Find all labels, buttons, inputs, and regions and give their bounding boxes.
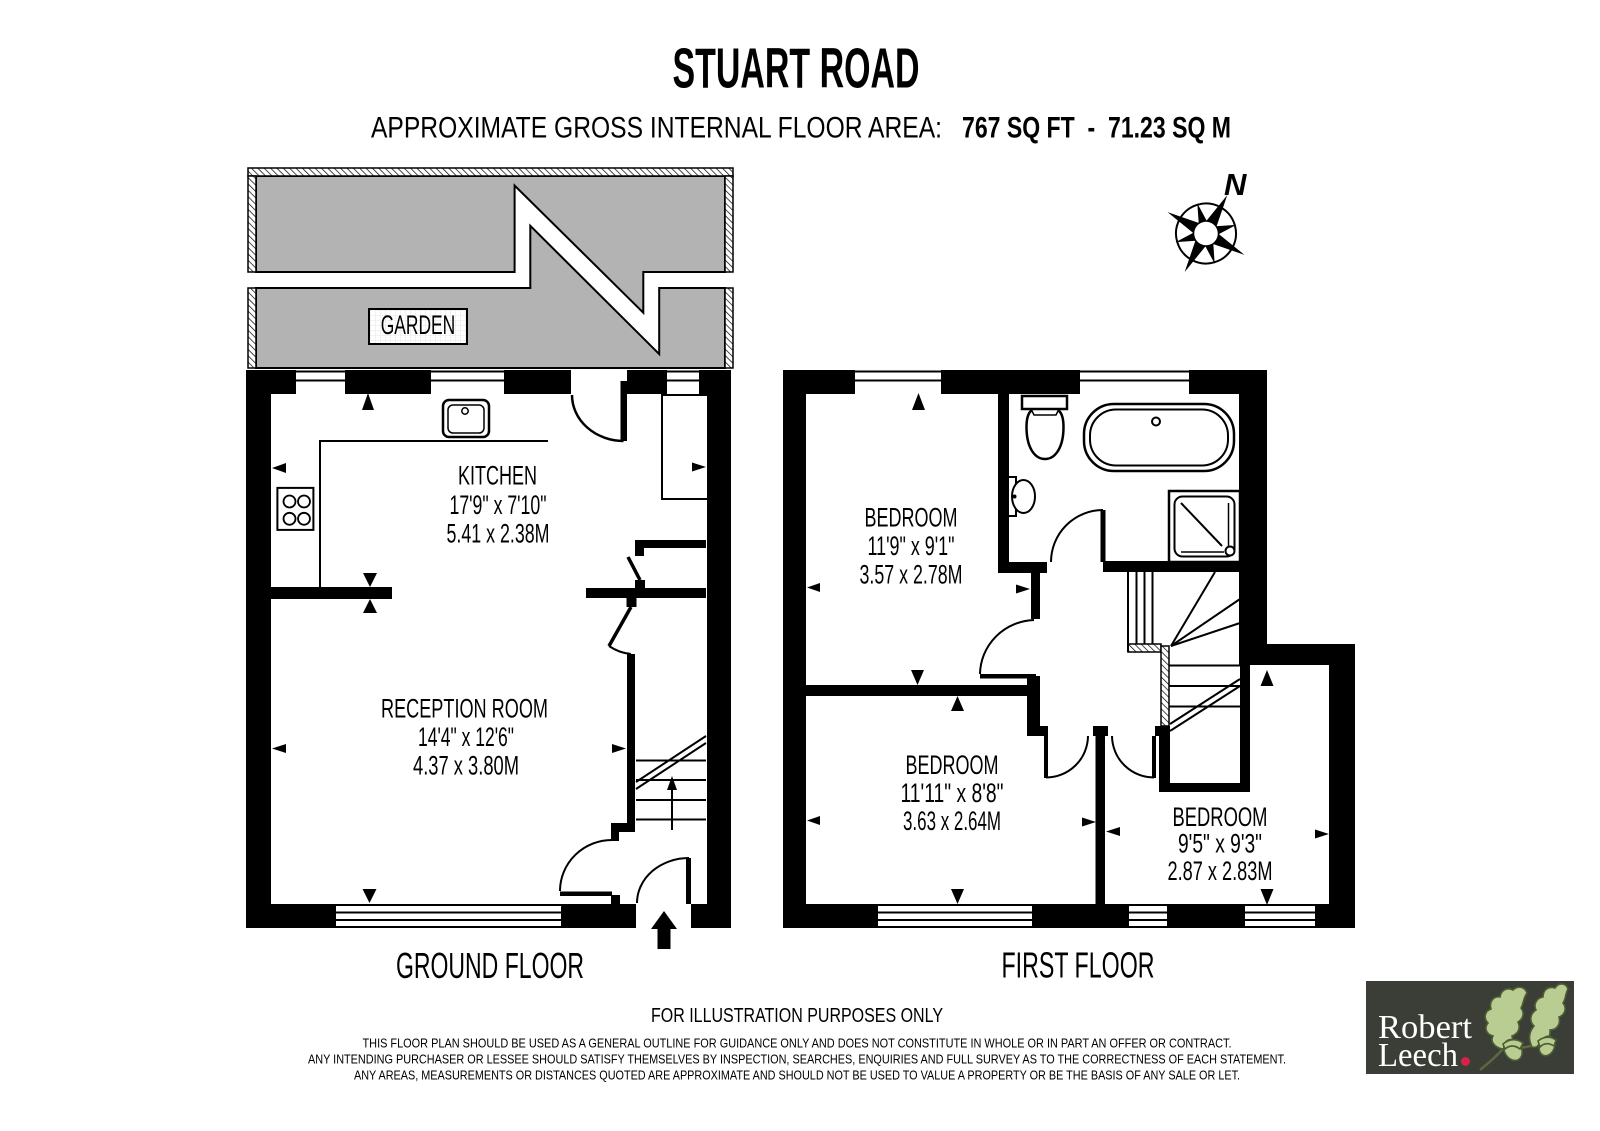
svg-text:RECEPTION ROOM: RECEPTION ROOM bbox=[381, 694, 548, 724]
svg-text:14'4" x 12'6": 14'4" x 12'6" bbox=[418, 722, 514, 752]
svg-text:17'9" x 7'10": 17'9" x 7'10" bbox=[450, 490, 547, 520]
svg-text:11'9" x 9'1": 11'9" x 9'1" bbox=[868, 531, 955, 561]
svg-text:N: N bbox=[1224, 167, 1247, 202]
svg-text:GROUND FLOOR: GROUND FLOOR bbox=[396, 945, 584, 986]
svg-text:ANY AREAS, MEASUREMENTS OR DIS: ANY AREAS, MEASUREMENTS OR DISTANCES QUO… bbox=[354, 1068, 1240, 1083]
svg-text:FOR ILLUSTRATION PURPOSES ONLY: FOR ILLUSTRATION PURPOSES ONLY bbox=[651, 1005, 943, 1027]
svg-text:Leech: Leech bbox=[1378, 1037, 1458, 1074]
svg-text:5.41 x 2.38M: 5.41 x 2.38M bbox=[447, 519, 550, 549]
svg-text:767 SQ FT - 71.23 SQ M: 767 SQ FT - 71.23 SQ M bbox=[962, 112, 1231, 145]
svg-text:APPROXIMATE GROSS INTERNAL FLO: APPROXIMATE GROSS INTERNAL FLOOR AREA: bbox=[371, 112, 942, 145]
svg-text:9'5" x 9'3": 9'5" x 9'3" bbox=[1178, 829, 1262, 859]
svg-text:2.87 x 2.83M: 2.87 x 2.83M bbox=[1168, 856, 1273, 886]
svg-text:STUART ROAD: STUART ROAD bbox=[673, 37, 920, 101]
svg-text:THIS FLOOR PLAN SHOULD BE USED: THIS FLOOR PLAN SHOULD BE USED AS A GENE… bbox=[363, 1036, 1232, 1051]
svg-text:ANY INTENDING PURCHASER OR LES: ANY INTENDING PURCHASER OR LESSEE SHOULD… bbox=[308, 1052, 1286, 1067]
svg-text:4.37 x 3.80M: 4.37 x 3.80M bbox=[413, 751, 519, 781]
svg-text:11'11" x 8'8": 11'11" x 8'8" bbox=[901, 778, 1004, 808]
svg-text:3.57 x 2.78M: 3.57 x 2.78M bbox=[860, 560, 963, 590]
svg-text:FIRST FLOOR: FIRST FLOOR bbox=[1002, 945, 1155, 986]
svg-text:BEDROOM: BEDROOM bbox=[1173, 802, 1268, 832]
svg-text:3.63 x 2.64M: 3.63 x 2.64M bbox=[903, 806, 1001, 836]
svg-text:BEDROOM: BEDROOM bbox=[906, 750, 999, 780]
svg-text:BEDROOM: BEDROOM bbox=[865, 503, 958, 533]
svg-text:KITCHEN: KITCHEN bbox=[458, 461, 537, 491]
svg-text:GARDEN: GARDEN bbox=[381, 310, 456, 340]
